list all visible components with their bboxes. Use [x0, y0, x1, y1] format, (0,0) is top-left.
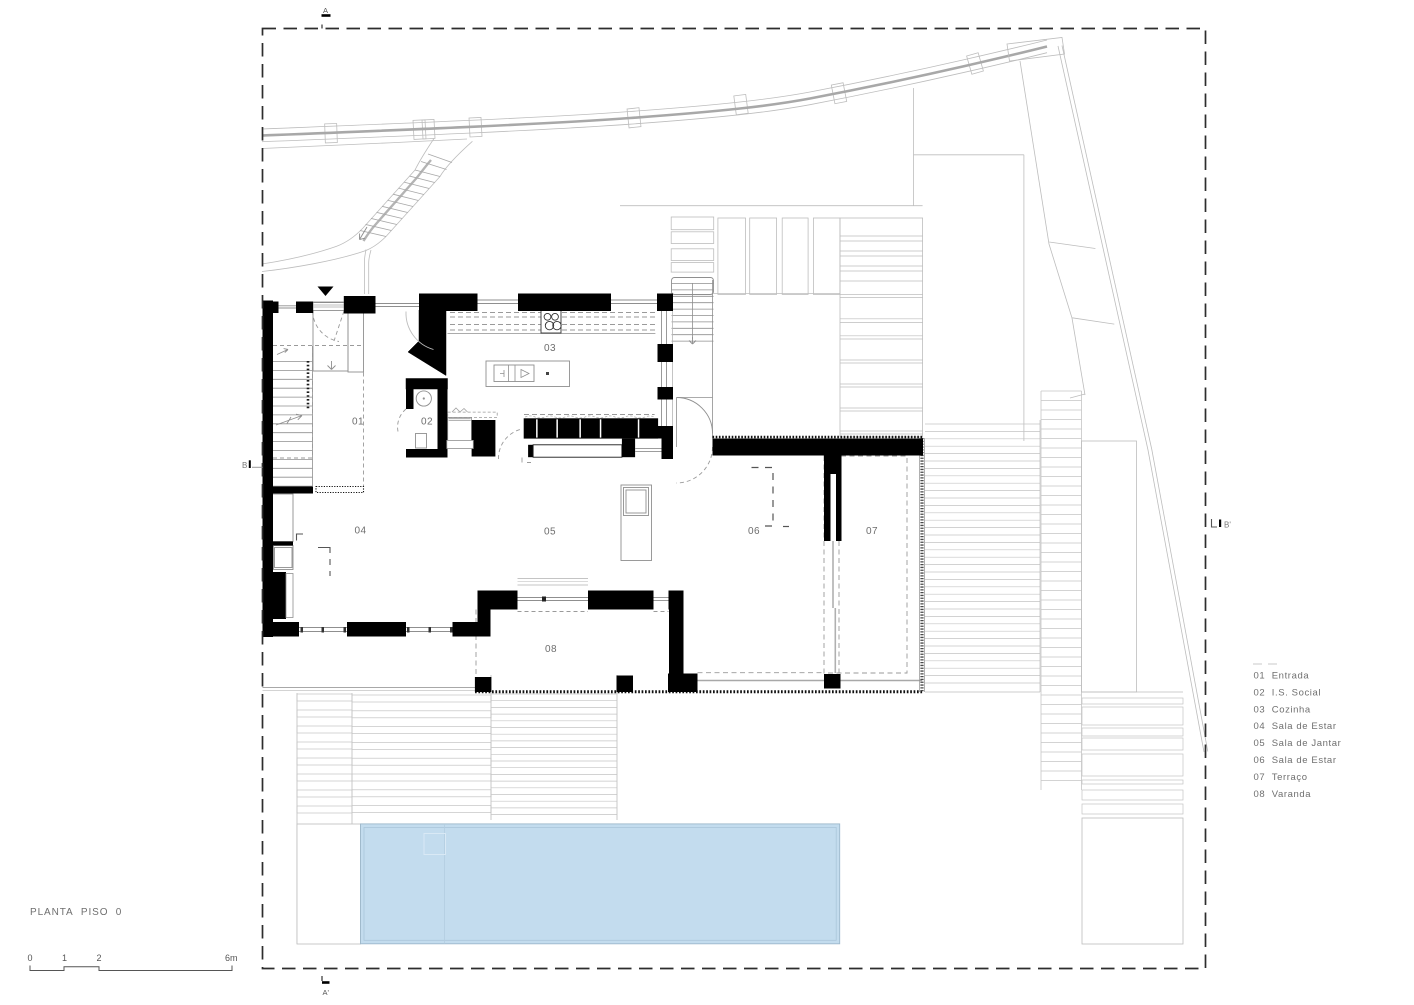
- svg-text:05: 05: [544, 527, 556, 538]
- svg-text:03 Cozinha: 03 Cozinha: [1254, 704, 1311, 715]
- svg-text:1: 1: [62, 953, 67, 963]
- svg-text:A': A': [323, 988, 330, 997]
- svg-text:06: 06: [748, 526, 760, 537]
- svg-text:02 I.S. Social: 02 I.S. Social: [1254, 687, 1322, 698]
- svg-text:03: 03: [544, 343, 556, 354]
- svg-text:0: 0: [28, 953, 33, 963]
- svg-text:07 Terraço: 07 Terraço: [1254, 772, 1308, 783]
- svg-text:B': B': [1224, 521, 1231, 530]
- svg-text:04 Sala de Estar: 04 Sala de Estar: [1254, 721, 1337, 732]
- svg-text:2: 2: [97, 953, 102, 963]
- svg-text:05 Sala de Jantar: 05 Sala de Jantar: [1254, 738, 1342, 749]
- svg-text:08: 08: [545, 644, 557, 655]
- svg-text:06 Sala de Estar: 06 Sala de Estar: [1254, 755, 1337, 766]
- svg-text:A: A: [323, 6, 328, 15]
- svg-text:07: 07: [866, 526, 878, 537]
- svg-text:01: 01: [352, 417, 364, 428]
- svg-text:08 Varanda: 08 Varanda: [1254, 789, 1312, 800]
- svg-text:B: B: [242, 461, 247, 470]
- svg-text:6m: 6m: [225, 953, 238, 963]
- svg-text:02: 02: [421, 417, 433, 428]
- svg-text:PLANTA PISO 0: PLANTA PISO 0: [30, 907, 122, 918]
- svg-text:01 Entrada: 01 Entrada: [1254, 671, 1310, 682]
- svg-text:04: 04: [354, 526, 366, 537]
